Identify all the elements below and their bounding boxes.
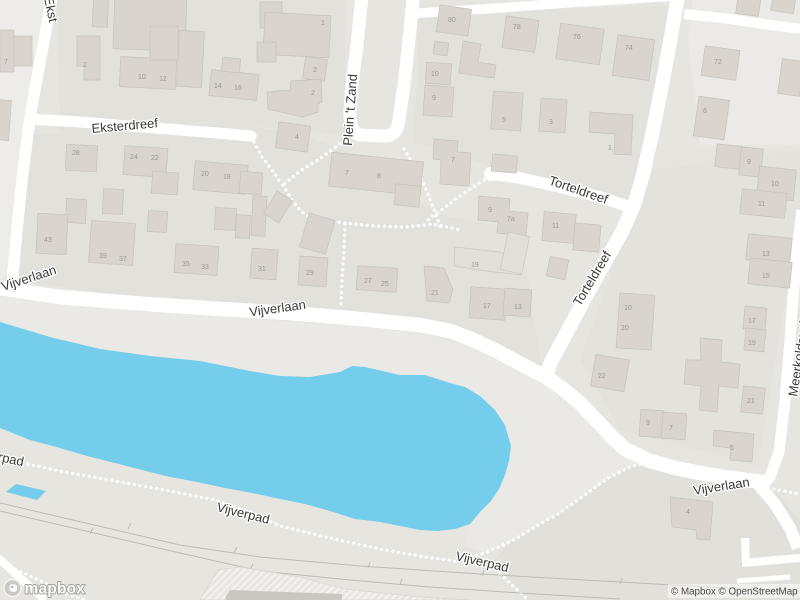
svg-text:35: 35 [182, 261, 190, 268]
svg-text:17: 17 [748, 318, 756, 325]
svg-text:9: 9 [646, 420, 650, 427]
svg-text:10: 10 [771, 181, 779, 188]
svg-text:2: 2 [311, 90, 315, 97]
svg-text:12: 12 [159, 76, 167, 83]
svg-text:17: 17 [483, 303, 491, 310]
svg-text:74: 74 [625, 45, 633, 52]
svg-text:10: 10 [138, 74, 146, 81]
svg-text:15: 15 [762, 273, 770, 280]
svg-text:7: 7 [4, 59, 8, 66]
svg-text:4: 4 [686, 509, 690, 516]
svg-text:7: 7 [451, 157, 455, 164]
svg-text:13: 13 [514, 304, 522, 311]
svg-text:33: 33 [201, 264, 209, 271]
svg-text:7: 7 [669, 425, 673, 432]
svg-text:2: 2 [83, 62, 87, 69]
svg-text:22: 22 [598, 373, 606, 380]
svg-text:8: 8 [377, 173, 381, 180]
svg-text:mapbox: mapbox [25, 581, 86, 598]
svg-text:24: 24 [130, 154, 138, 161]
svg-text:11: 11 [552, 223, 559, 230]
svg-text:13: 13 [762, 251, 770, 258]
svg-text:© Mapbox © OpenStreetMap: © Mapbox © OpenStreetMap [671, 587, 798, 598]
svg-text:10: 10 [431, 71, 439, 78]
svg-text:9: 9 [488, 207, 492, 214]
svg-text:20: 20 [621, 325, 629, 332]
svg-text:29: 29 [306, 270, 314, 277]
svg-text:7: 7 [345, 170, 349, 177]
svg-text:37: 37 [119, 256, 127, 263]
svg-text:27: 27 [364, 278, 372, 285]
svg-text:19: 19 [471, 262, 479, 269]
svg-text:22: 22 [151, 155, 159, 162]
svg-text:9: 9 [747, 159, 751, 166]
svg-text:6: 6 [703, 108, 707, 115]
svg-text:80: 80 [448, 17, 456, 24]
svg-text:5: 5 [502, 117, 506, 124]
svg-text:25: 25 [381, 281, 389, 288]
svg-text:7a: 7a [507, 216, 515, 223]
svg-text:43: 43 [44, 237, 52, 244]
svg-text:20: 20 [201, 171, 209, 178]
svg-text:11: 11 [758, 201, 765, 208]
svg-text:4: 4 [295, 134, 299, 141]
svg-text:76: 76 [573, 34, 581, 41]
svg-text:1: 1 [608, 145, 612, 152]
svg-text:10: 10 [624, 305, 632, 312]
svg-text:39: 39 [99, 253, 107, 260]
svg-text:28: 28 [72, 150, 80, 157]
svg-text:21: 21 [431, 290, 439, 297]
svg-text:18: 18 [223, 174, 231, 181]
svg-text:1: 1 [321, 20, 325, 27]
svg-text:5: 5 [730, 445, 734, 452]
svg-text:31: 31 [258, 266, 266, 273]
svg-text:72: 72 [714, 59, 722, 66]
svg-text:2: 2 [313, 67, 317, 74]
svg-text:16: 16 [234, 85, 242, 92]
svg-text:78: 78 [513, 24, 521, 31]
svg-text:3: 3 [549, 119, 553, 126]
svg-text:9: 9 [432, 95, 436, 102]
svg-text:21: 21 [747, 398, 755, 405]
svg-text:19: 19 [748, 340, 756, 347]
svg-text:14: 14 [214, 83, 222, 90]
